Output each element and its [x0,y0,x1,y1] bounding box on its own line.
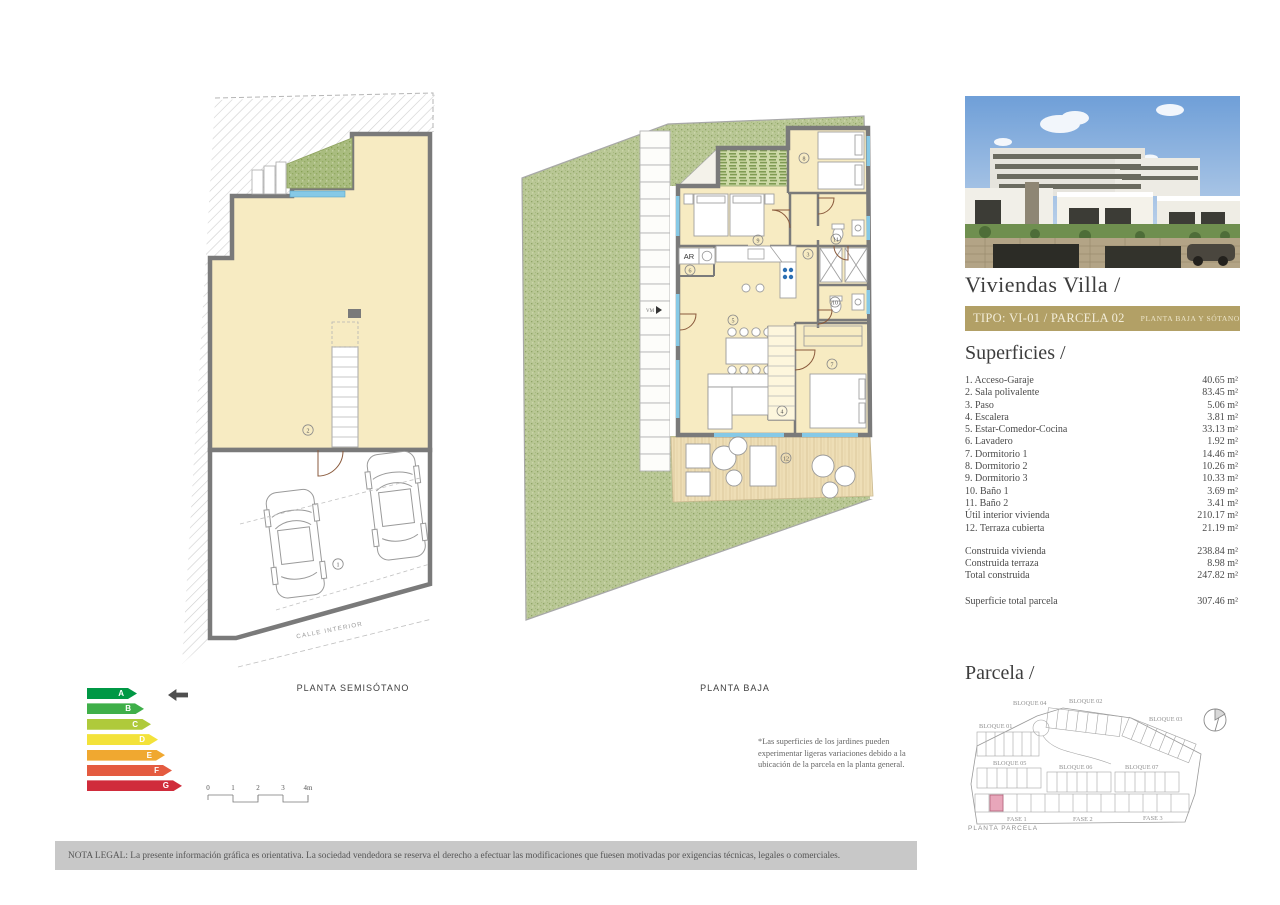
street-label: CALLE INTERIOR [296,621,364,641]
floorplan-planta-baja: AR [518,98,922,723]
energy-row-b: B [87,703,144,714]
svg-text:VM: VM [646,309,655,314]
type-banner: TIPO: VI-01 / PARCELA 02 PLANTA BAJA Y S… [965,306,1240,331]
svg-text:BLOQUE 07: BLOQUE 07 [1125,764,1158,771]
superficies-table: 1. Acceso-Garaje40.65 m² 2. Sala polival… [965,375,1238,608]
compass-icon [1204,709,1226,731]
svg-text:FASE 2: FASE 2 [1073,816,1093,823]
site-plan-caption: PLANTA PARCELA [968,825,1038,832]
svg-text:BLOQUE 05: BLOQUE 05 [993,760,1026,767]
svg-text:BLOQUE 04: BLOQUE 04 [1013,700,1047,707]
semisotano-plan-label: PLANTA SEMISÓTANO [248,683,458,693]
svg-text:6: 6 [689,269,692,275]
svg-text:11: 11 [833,238,839,244]
basement-window [290,191,345,197]
superficies-heading: Superficies / [965,342,1240,365]
energy-rating-label: A B C D E F G [87,688,227,796]
svg-text:1: 1 [231,784,235,792]
svg-text:12: 12 [783,457,789,463]
parcela-heading: Parcela / [965,662,1240,685]
scale-bar-ticks [208,795,308,802]
svg-text:3: 3 [807,253,810,259]
superficie-row: 2. Sala polivalente83.45 m² [965,387,1238,399]
banner-floor-label: PLANTA BAJA Y SÓTANO [1141,314,1240,323]
svg-text:1: 1 [337,563,340,569]
svg-text:4m: 4m [304,784,314,792]
svg-text:0: 0 [206,784,210,792]
svg-text:2: 2 [307,429,310,435]
superficie-row: 6. Lavadero1.92 m² [965,436,1238,448]
page-title: Viviendas Villa / [965,272,1240,298]
garden-disclaimer-note: *Las superficies de los jardines pueden … [758,736,926,771]
building-photo [965,96,1240,268]
svg-text:BLOQUE 03: BLOQUE 03 [1149,716,1182,723]
svg-text:9: 9 [757,239,760,245]
column [348,309,361,318]
svg-text:BLOQUE 01: BLOQUE 01 [979,723,1012,730]
highlighted-parcel [990,795,1003,811]
superficie-total-row: Construida terraza8.98 m² [965,558,1238,570]
superficie-row: 5. Estar-Comedor-Cocina33.13 m² [965,424,1238,436]
superficie-row: 7. Dormitorio 114.46 m² [965,449,1238,461]
svg-text:FASE 3: FASE 3 [1143,815,1163,822]
energy-row-f: F [87,765,172,776]
svg-text:3: 3 [281,784,285,792]
superficie-row: 1. Acceso-Garaje40.65 m² [965,375,1238,387]
superficie-row: 11. Baño 23.41 m² [965,498,1238,510]
superficie-row: 3. Paso5.06 m² [965,400,1238,412]
parcel-total-row: Superficie total parcela307.46 m² [965,596,1238,608]
superficie-total-row: Total construida247.82 m² [965,570,1238,582]
energy-row-g: G [87,780,182,791]
laundry: AR [679,248,715,264]
energy-row-c: C [87,719,151,730]
ar-label: AR [684,252,695,261]
pergola [718,148,788,186]
svg-text:10: 10 [832,301,838,307]
svg-text:BLOQUE 02: BLOQUE 02 [1069,698,1102,705]
energy-row-e: E [87,750,165,761]
legal-note-bar: NOTA LEGAL: La presente información gráf… [55,841,917,870]
superficie-row: 12. Terraza cubierta21.19 m² [965,523,1238,535]
svg-text:FASE 1: FASE 1 [1007,816,1027,823]
site-plan: BLOQUE 01 BLOQUE 04 BLOQUE 02 BLOQUE 03 … [963,694,1240,826]
brochure-sheet: CALLE INTERIOR 2 1 [0,0,1280,905]
banner-type-label: TIPO: VI-01 / PARCELA 02 [965,311,1125,326]
superficie-row: 4. Escalera3.81 m² [965,412,1238,424]
scale-bar: 0 1 2 3 4m [200,782,325,808]
superficie-row: 8. Dormitorio 210.26 m² [965,461,1238,473]
legal-note-text: NOTA LEGAL: La presente información gráf… [55,851,840,861]
superficie-row: Útil interior vivienda210.17 m² [965,510,1238,522]
svg-text:8: 8 [803,157,806,163]
floorplan-semisotano: CALLE INTERIOR 2 1 [180,92,480,677]
superficie-row: 10. Baño 13.69 m² [965,486,1238,498]
svg-text:2: 2 [256,784,260,792]
exterior-steps [640,131,670,471]
svg-text:BLOQUE 06: BLOQUE 06 [1059,764,1092,771]
svg-text:7: 7 [831,363,834,369]
svg-text:4: 4 [781,410,784,416]
baja-plan-label: PLANTA BAJA [645,683,825,693]
svg-text:5: 5 [732,319,735,325]
superficie-row: 9. Dormitorio 310.33 m² [965,473,1238,485]
energy-row-d: D [87,734,158,745]
energy-row-a: A [87,688,137,699]
superficie-total-row: Construida vivienda238.84 m² [965,546,1238,558]
